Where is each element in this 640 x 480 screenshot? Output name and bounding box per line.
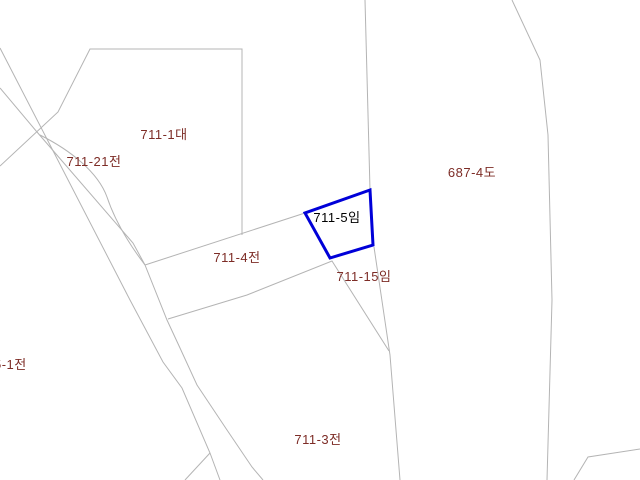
map-canvas[interactable]: 711-1대 711-21전 687-4도 711-5임 711-4전 711-… [0, 0, 640, 480]
parcel-label-711-3: 711-3전 [294, 432, 341, 447]
parcel-687-4-east-boundary [512, 0, 552, 480]
parcel-label-711-5: 711-5임 [313, 210, 360, 225]
parcel-label-711-15: 711-15임 [337, 269, 392, 284]
road-bottom-branch-line [185, 453, 210, 480]
parcel-label-711-21: 711-21전 [67, 154, 122, 169]
road-left-edge-line [0, 48, 220, 480]
parcel-label-711-1: 711-1대 [140, 127, 187, 142]
parcel-687-4-west-upper-boundary [365, 0, 370, 190]
parcel-label-5-1: 5-1전 [0, 357, 27, 372]
road-right-edge-line [0, 88, 263, 480]
cadastral-map[interactable]: 711-1대 711-21전 687-4도 711-5임 711-4전 711-… [0, 0, 640, 480]
parcel-label-711-4: 711-4전 [213, 250, 260, 265]
parcel-label-687-4: 687-4도 [448, 165, 496, 180]
parcel-711-1-boundary [0, 49, 242, 235]
bottom-right-parcel-boundary [574, 449, 640, 480]
